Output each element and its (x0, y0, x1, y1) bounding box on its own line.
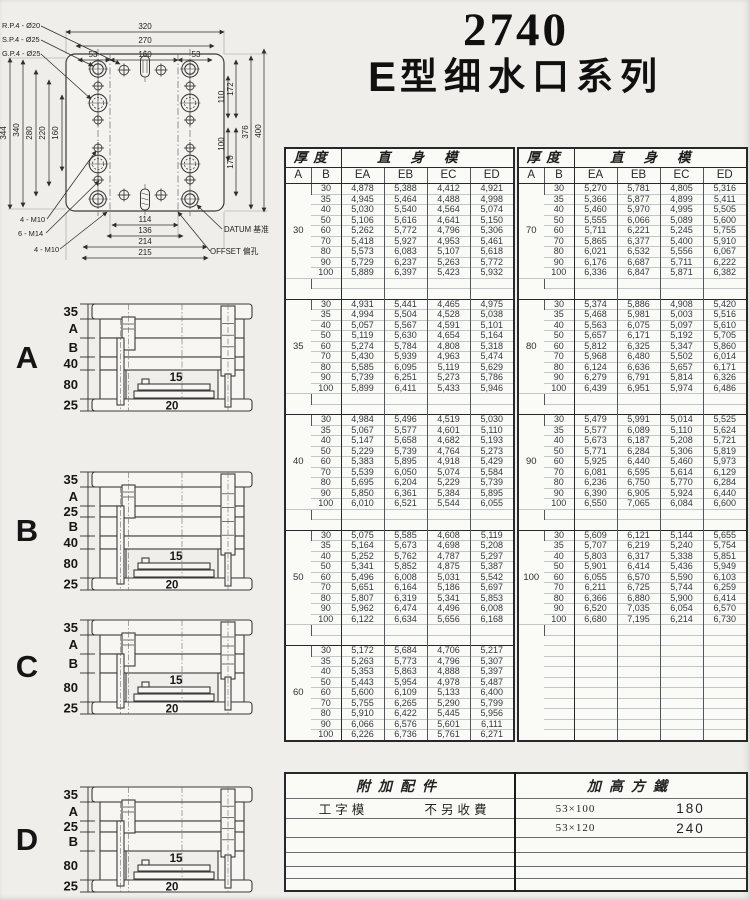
table-row: 906,0666,5765,6016,111 (285, 719, 514, 730)
price-cell: 5,542 (470, 572, 514, 583)
empty-cell (617, 289, 660, 300)
empty-cell (285, 509, 311, 530)
table-row: 1006,4396,9515,9746,486 (518, 383, 747, 394)
table-row: 605,7116,2215,2455,755 (518, 226, 747, 237)
thickness-b-value: 70 (311, 352, 341, 363)
price-cell: 5,901 (574, 562, 617, 573)
header-thickness: 厚度 (285, 148, 341, 168)
empty-cell (427, 289, 470, 300)
svg-text:15: 15 (170, 372, 183, 384)
price-cell: 5,067 (341, 425, 384, 436)
table-row: 705,4305,9394,9635,474 (285, 352, 514, 363)
empty-cell (544, 509, 574, 520)
svg-text:20: 20 (166, 401, 179, 413)
price-cell: 5,423 (427, 268, 470, 279)
price-cell: 6,124 (574, 362, 617, 373)
empty-cell (574, 646, 617, 657)
empty-cell (703, 688, 747, 699)
table-row: 405,5636,0755,0975,610 (518, 320, 747, 331)
thickness-b-value: 60 (544, 226, 574, 237)
label-cell: 工字模 (285, 799, 401, 819)
price-cell: 4,465 (427, 299, 470, 310)
dim-label: 214 (138, 237, 152, 246)
svg-text:25: 25 (64, 398, 78, 413)
price-cell: 5,899 (341, 383, 384, 394)
thickness-b-value: 90 (544, 373, 574, 384)
price-cell: 5,411 (703, 194, 747, 205)
empty-cell (515, 838, 635, 853)
price-cell: 5,927 (384, 236, 427, 247)
price-cell: 5,430 (341, 352, 384, 363)
svg-text:35: 35 (64, 620, 78, 635)
table-row: 1005,8996,4115,4335,946 (285, 383, 514, 394)
price-cell: 5,397 (470, 667, 514, 678)
dim-label: 215 (138, 248, 152, 257)
price-cell: 4,945 (341, 194, 384, 205)
price-cell: 6,550 (574, 499, 617, 510)
empty-cell (470, 278, 514, 289)
price-cell: 5,754 (703, 541, 747, 552)
svg-text:15: 15 (170, 853, 183, 865)
diagram-letter-B: B (12, 513, 42, 549)
table-row: 905,7396,2515,2735,786 (285, 373, 514, 384)
table-row: 505,6576,1715,1925,705 (518, 331, 747, 342)
price-cell: 5,877 (617, 194, 660, 205)
table-row: 806,0216,5325,5566,067 (518, 247, 747, 258)
empty-row (518, 520, 747, 531)
empty-cell (384, 289, 427, 300)
table-row: 405,6736,1875,2085,721 (518, 436, 747, 447)
empty-cell (703, 404, 747, 415)
price-cell: 5,544 (427, 499, 470, 510)
thickness-b-value: 60 (544, 341, 574, 352)
empty-row (518, 404, 747, 415)
col-header-ec: EC (427, 168, 470, 184)
price-cell: 5,968 (574, 352, 617, 363)
dim-label: 340 (12, 123, 21, 137)
price-cell: 4,608 (427, 530, 470, 541)
price-cell: 5,186 (427, 583, 470, 594)
empty-cell (574, 625, 617, 636)
empty-cell (285, 853, 401, 867)
svg-text:A: A (69, 637, 79, 652)
empty-cell (660, 520, 703, 531)
price-cell: 5,263 (341, 656, 384, 667)
thickness-b-value: 80 (544, 478, 574, 489)
price-cell: 6,111 (470, 719, 514, 730)
empty-cell (401, 879, 515, 892)
price-cell: 5,573 (341, 247, 384, 258)
price-cell: 6,122 (341, 614, 384, 625)
price-cell: 4,984 (341, 415, 384, 426)
price-cell: 5,400 (660, 236, 703, 247)
empty-cell (544, 520, 574, 531)
price-cell: 5,353 (341, 667, 384, 678)
price-cell: 6,089 (617, 425, 660, 436)
accessories-row (285, 838, 747, 853)
col-header-a: A (285, 168, 311, 184)
price-cell: 6,634 (384, 614, 427, 625)
thickness-b-value: 80 (544, 362, 574, 373)
thickness-b-value: 100 (311, 383, 341, 394)
dim-label: 376 (241, 125, 250, 139)
thickness-b-value: 40 (544, 436, 574, 447)
empty-cell (544, 625, 574, 636)
empty-cell (311, 289, 341, 300)
thickness-b-value: 40 (311, 551, 341, 562)
col-header-ea: EA (341, 168, 384, 184)
price-cell: 5,316 (703, 184, 747, 195)
price-cell: 5,150 (470, 215, 514, 226)
mold-section-B: .pl{fill:#f7f6f2;stroke:#3b3b3b;stroke-w… (42, 468, 260, 594)
table-row: 906,2796,7915,8146,326 (518, 373, 747, 384)
table-row: 355,4685,9815,0035,516 (518, 310, 747, 321)
price-cell: 5,630 (384, 331, 427, 342)
empty-cell (574, 709, 617, 720)
price-cell: 6,361 (384, 488, 427, 499)
price-cell: 5,970 (617, 205, 660, 216)
empty-cell (470, 625, 514, 636)
price-cell: 5,443 (341, 677, 384, 688)
price-cell: 5,773 (384, 656, 427, 667)
table-row: 806,3666,8805,9006,414 (518, 593, 747, 604)
price-value: 240 (635, 819, 747, 838)
price-cell: 6,168 (470, 614, 514, 625)
price-cell: 4,682 (427, 436, 470, 447)
svg-text:35: 35 (64, 787, 78, 802)
empty-cell (703, 730, 747, 741)
price-cell: 6,397 (384, 268, 427, 279)
price-cell: 6,576 (384, 719, 427, 730)
price-cell: 5,910 (703, 236, 747, 247)
price-cell: 6,382 (703, 268, 747, 279)
thickness-b-value: 50 (311, 562, 341, 573)
price-cell: 6,066 (341, 719, 384, 730)
price-cell: 4,975 (470, 299, 514, 310)
svg-text:15: 15 (170, 675, 183, 687)
svg-text:15: 15 (170, 551, 183, 563)
price-cell: 6,366 (574, 593, 617, 604)
thickness-b-value: 70 (311, 583, 341, 594)
empty-cell (384, 404, 427, 415)
price-cell: 6,054 (660, 604, 703, 615)
price-cell: 5,673 (574, 436, 617, 447)
empty-cell (285, 838, 401, 853)
thickness-b-value: 40 (311, 667, 341, 678)
price-cell: 5,306 (660, 446, 703, 457)
price-cell: 6,390 (574, 488, 617, 499)
price-cell: 5,487 (470, 677, 514, 688)
price-cell: 5,600 (703, 215, 747, 226)
thickness-b-value: 90 (544, 604, 574, 615)
table-row: 405,1475,6584,6825,193 (285, 436, 514, 447)
thickness-b-value: 60 (311, 572, 341, 583)
thickness-b-value: 50 (311, 331, 341, 342)
thickness-b-value: 50 (544, 446, 574, 457)
price-cell: 6,083 (384, 247, 427, 258)
col-header-eb: EB (384, 168, 427, 184)
price-cell: 4,496 (427, 604, 470, 615)
empty-cell (660, 677, 703, 688)
table-row: 505,4435,9544,9785,487 (285, 677, 514, 688)
price-cell: 6,326 (703, 373, 747, 384)
price-cell: 6,750 (617, 478, 660, 489)
price-cell: 5,577 (384, 425, 427, 436)
empty-row (518, 509, 747, 520)
thickness-b-value: 100 (544, 383, 574, 394)
price-cell: 5,925 (574, 457, 617, 468)
thickness-b-value: 100 (311, 614, 341, 625)
price-cell: 5,420 (703, 299, 747, 310)
table-row: 1006,0106,5215,5446,055 (285, 499, 514, 510)
thickness-b-value: 50 (544, 331, 574, 342)
empty-cell (544, 677, 574, 688)
table-row: 505,1195,6304,6545,164 (285, 331, 514, 342)
table-row: 405,8036,3175,3385,851 (518, 551, 747, 562)
annotation-support-pin: S.P.4 - Ø25 (2, 35, 40, 44)
table-row: 906,1766,6875,7116,222 (518, 257, 747, 268)
empty-cell (660, 730, 703, 741)
price-cell: 5,263 (427, 257, 470, 268)
empty-cell (574, 404, 617, 415)
dim-label: 160 (51, 126, 60, 140)
price-cell: 5,711 (660, 257, 703, 268)
price-cell: 5,781 (617, 184, 660, 195)
svg-text:80: 80 (64, 680, 78, 695)
price-cell: 5,755 (341, 698, 384, 709)
title-block: 2740 E型细水口系列 (286, 6, 746, 107)
table-row: 505,7716,2845,3065,819 (518, 446, 747, 457)
price-cell: 4,519 (427, 415, 470, 426)
empty-cell (544, 688, 574, 699)
diagram-letter-A: A (12, 340, 42, 376)
svg-text:B: B (69, 656, 78, 671)
thickness-b-value: 100 (544, 614, 574, 625)
price-cell: 6,905 (617, 488, 660, 499)
empty-cell (427, 278, 470, 289)
empty-cell (574, 667, 617, 678)
price-cell: 6,847 (617, 268, 660, 279)
price-cell: 5,610 (703, 320, 747, 331)
price-cell: 5,803 (574, 551, 617, 562)
price-cell: 5,208 (660, 436, 703, 447)
empty-cell (660, 278, 703, 289)
price-cell: 4,908 (660, 299, 703, 310)
dim-label: 400 (254, 124, 263, 138)
price-cell: 6,236 (574, 478, 617, 489)
price-cell: 5,468 (574, 310, 617, 321)
thickness-b-value: 30 (311, 530, 341, 541)
price-cell: 6,050 (384, 467, 427, 478)
price-cell: 4,998 (470, 194, 514, 205)
thickness-b-value: 60 (311, 341, 341, 352)
empty-cell (617, 656, 660, 667)
empty-cell (574, 278, 617, 289)
empty-cell (703, 635, 747, 646)
price-cell: 4,796 (427, 656, 470, 667)
thickness-b-value: 40 (311, 436, 341, 447)
thickness-b-value: 100 (311, 499, 341, 510)
annotation-datum: DATUM 基准 (224, 224, 269, 234)
price-cell: 5,441 (384, 299, 427, 310)
price-cell: 6,736 (384, 730, 427, 741)
empty-row (518, 688, 747, 699)
thickness-a-value: 90 (518, 415, 544, 510)
price-cell: 5,106 (341, 215, 384, 226)
table-row: 1006,5507,0656,0846,600 (518, 499, 747, 510)
empty-row (518, 719, 747, 730)
price-cell: 5,695 (341, 478, 384, 489)
price-cell: 5,525 (703, 415, 747, 426)
price-cell: 4,808 (427, 341, 470, 352)
table-row: 60305,1725,6844,7065,217 (285, 646, 514, 657)
price-cell: 5,614 (660, 467, 703, 478)
price-cell: 5,981 (617, 310, 660, 321)
size-spec: 53×120 (515, 819, 635, 838)
price-cell: 6,171 (617, 331, 660, 342)
price-cell: 6,284 (703, 478, 747, 489)
price-cell: 6,055 (470, 499, 514, 510)
svg-text:B: B (69, 834, 78, 849)
price-cell: 5,208 (470, 541, 514, 552)
price-cell: 5,567 (384, 320, 427, 331)
annotation-offset: OFFSET 偏孔 (210, 246, 259, 256)
thickness-b-value: 100 (544, 499, 574, 510)
empty-cell (617, 625, 660, 636)
empty-cell (544, 709, 574, 720)
price-cell: 5,107 (427, 247, 470, 258)
price-cell: 4,601 (427, 425, 470, 436)
empty-cell (703, 394, 747, 405)
empty-cell (574, 730, 617, 741)
empty-row (518, 278, 747, 289)
price-cell: 5,229 (341, 446, 384, 457)
thickness-b-value: 40 (544, 320, 574, 331)
price-cell: 5,819 (703, 446, 747, 457)
empty-cell (518, 509, 544, 530)
table-row: 355,7076,2195,2405,754 (518, 541, 747, 552)
thickness-b-value: 35 (311, 194, 341, 205)
svg-text:25: 25 (64, 879, 78, 894)
price-cell: 5,889 (341, 268, 384, 279)
empty-cell (635, 838, 747, 853)
price-cell: 6,055 (574, 572, 617, 583)
price-cell: 5,217 (470, 646, 514, 657)
thickness-b-value: 30 (311, 415, 341, 426)
price-cell: 6,221 (617, 226, 660, 237)
price-cell: 5,956 (470, 709, 514, 720)
price-cell: 5,101 (470, 320, 514, 331)
price-cell: 5,939 (384, 352, 427, 363)
price-cell: 4,706 (427, 646, 470, 657)
price-cell: 5,496 (384, 415, 427, 426)
price-cell: 6,095 (384, 362, 427, 373)
table-row: 605,2745,7844,8085,318 (285, 341, 514, 352)
empty-cell (384, 625, 427, 636)
empty-cell (544, 278, 574, 289)
price-cell: 6,687 (617, 257, 660, 268)
price-cell: 5,245 (660, 226, 703, 237)
price-cell: 5,387 (470, 562, 514, 573)
svg-text:25: 25 (64, 577, 78, 592)
price-cell: 5,655 (703, 530, 747, 541)
price-cell: 5,347 (660, 341, 703, 352)
thickness-b-value: 70 (544, 236, 574, 247)
empty-cell (617, 688, 660, 699)
col-header-a: A (518, 168, 544, 184)
price-table-right-mount: 厚度直身模ABEAEBECED70305,2705,7814,8055,3163… (517, 147, 748, 742)
table-row: 90305,4795,9915,0145,525 (518, 415, 747, 426)
thickness-b-value: 35 (544, 425, 574, 436)
empty-cell (660, 509, 703, 520)
price-cell: 5,110 (470, 425, 514, 436)
price-cell: 6,222 (703, 257, 747, 268)
empty-cell (660, 688, 703, 699)
price-cell: 6,237 (384, 257, 427, 268)
price-cell: 5,240 (660, 541, 703, 552)
price-cell: 5,577 (574, 425, 617, 436)
table-row: 805,5856,0955,1195,629 (285, 362, 514, 373)
price-cell: 6,204 (384, 478, 427, 489)
price-cell: 4,488 (427, 194, 470, 205)
price-cell: 5,556 (660, 247, 703, 258)
thickness-b-value: 100 (544, 268, 574, 279)
thickness-b-value: 60 (311, 688, 341, 699)
empty-cell (574, 635, 617, 646)
header-straight-mold: 直身模 (341, 148, 514, 168)
svg-text:35: 35 (64, 472, 78, 487)
svg-text:80: 80 (64, 556, 78, 571)
annotation-m14: 6 - M14 (18, 229, 43, 238)
price-cell: 5,502 (660, 352, 703, 363)
price-cell: 5,074 (427, 467, 470, 478)
price-cell: 4,564 (427, 205, 470, 216)
price-cell: 5,954 (384, 677, 427, 688)
dim-label: 53 (89, 50, 98, 59)
price-cell: 5,341 (341, 562, 384, 573)
svg-text:40: 40 (64, 535, 78, 550)
table-row: 30304,8785,3884,4124,921 (285, 184, 514, 195)
mold-diagram-A: A .pl{fill:#f7f6f2;stroke:#3b3b3b;stroke… (12, 300, 260, 415)
thickness-b-value: 80 (311, 362, 341, 373)
price-cell: 6,008 (384, 572, 427, 583)
table-row: 35304,9315,4414,4654,975 (285, 299, 514, 310)
empty-cell (574, 688, 617, 699)
table-row: 505,1065,6164,6415,150 (285, 215, 514, 226)
price-cell: 5,433 (427, 383, 470, 394)
price-cell: 6,014 (703, 352, 747, 363)
empty-row (518, 709, 747, 720)
empty-cell (703, 698, 747, 709)
thickness-b-value: 30 (311, 299, 341, 310)
price-cell: 5,563 (574, 320, 617, 331)
annotation-m10: 4 - M10 (20, 215, 45, 224)
empty-cell (341, 625, 384, 636)
price-cell: 5,172 (341, 646, 384, 657)
thickness-b-value: 50 (544, 562, 574, 573)
svg-text:25: 25 (64, 701, 78, 716)
price-cell: 5,974 (660, 383, 703, 394)
price-cell: 5,618 (470, 247, 514, 258)
empty-cell (401, 819, 515, 838)
price-cell: 6,730 (703, 614, 747, 625)
price-cell: 6,317 (617, 551, 660, 562)
empty-row (285, 625, 514, 636)
table-row: 905,8506,3615,3845,895 (285, 488, 514, 499)
accessories-row (285, 879, 747, 892)
price-cell: 5,014 (660, 415, 703, 426)
table-row: 605,9256,4405,4605,973 (518, 457, 747, 468)
